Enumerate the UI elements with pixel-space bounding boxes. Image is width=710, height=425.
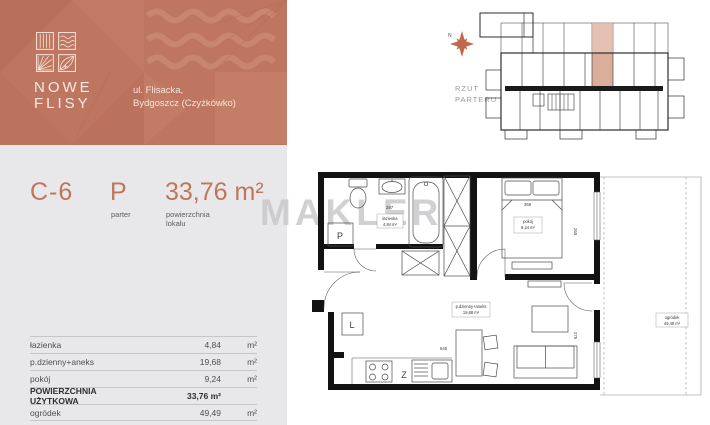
bathroom-area-label: 4,84 m² [383, 222, 398, 227]
kitchen: Z [352, 358, 452, 384]
brand-name-line1: NOWE [34, 80, 93, 96]
row-label: pokój [30, 374, 161, 384]
bathtub-icon [409, 177, 443, 247]
dim-bathroom: 297 [386, 205, 394, 210]
dining-table-icon [456, 330, 498, 377]
bathroom-door [354, 249, 376, 271]
table-row-bedroom: pokój 9,24 m² [30, 370, 257, 387]
floor-plan: ogródek 49,49 m² [287, 150, 710, 425]
sink-marker: Z [401, 370, 407, 380]
row-value: 49,49 [161, 408, 221, 418]
toilet-icon [349, 179, 367, 208]
living-room: p.dzienny+aneks 19,68 m² L Z [342, 302, 578, 384]
table-row-garden: ogródek 49,49 m² [30, 404, 257, 421]
bed-bench [512, 262, 552, 269]
site-plan: N RZUT PARTERU [430, 0, 710, 148]
bedroom-area-label: 9,24 m² [521, 225, 536, 230]
row-unit: m² [221, 357, 257, 367]
row-unit: m² [221, 340, 257, 350]
unit-area-value: 33,76 m² [165, 178, 264, 207]
listing-card: NOWE FLISY ul. Flisacka, Bydgoszcz (Czyż… [0, 0, 710, 425]
areas-table: łazienka 4,84 m² p.dzienny+aneks 19,68 m… [30, 336, 257, 421]
row-unit: m² [221, 408, 257, 418]
total-label: POWIERZCHNIA UŻYTKOWA [30, 386, 126, 406]
row-label: ogródek [30, 408, 161, 418]
brand-header: NOWE FLISY ul. Flisacka, Bydgoszcz (Czyż… [0, 0, 287, 145]
floor-caption: parter [111, 210, 131, 219]
left-panel: NOWE FLISY ul. Flisacka, Bydgoszcz (Czyż… [0, 0, 287, 425]
living-area-label: 19,68 m² [463, 310, 480, 315]
table-row-living: p.dzienny+aneks 19,68 m² [30, 353, 257, 370]
compass-n-label: N [448, 33, 452, 39]
dim-right-top: 269 [573, 228, 578, 236]
washer-marker: P [337, 231, 343, 241]
row-label: p.dzienny+aneks [30, 357, 161, 367]
kitchen-sink-icon [412, 360, 452, 382]
window-right-bedroom [594, 192, 600, 240]
unit-area-caption: powierzchnia lokalu [166, 210, 210, 228]
sink-icon [379, 179, 405, 194]
bathroom-label: łazienka [382, 216, 398, 221]
table-row-bathroom: łazienka 4,84 m² [30, 336, 257, 353]
unit-code: C-6 [30, 178, 73, 207]
dresser [528, 281, 561, 287]
bathroom: 297 łazienka 4,84 m² [349, 177, 443, 247]
total-value: 33,76 m² [126, 391, 221, 401]
unit-area-caption-line2: lokalu [166, 219, 210, 228]
brand-address: ul. Flisacka, Bydgoszcz (Czyżkówko) [133, 84, 236, 110]
row-value: 9,24 [161, 374, 221, 384]
row-value: 19,68 [161, 357, 221, 367]
floor-code: P [110, 178, 127, 207]
living-label: p.dzienny+aneks [456, 304, 487, 309]
row-unit: m² [221, 374, 257, 384]
window-right-living [594, 342, 600, 378]
header-pattern [0, 0, 287, 145]
sofa-icon [514, 346, 577, 378]
unit-area-caption-line1: powierzchnia [166, 210, 210, 219]
table-row-total: POWIERZCHNIA UŻYTKOWA 33,76 m² [30, 387, 257, 404]
row-value: 4,84 [161, 340, 221, 350]
bedroom: 369 pokój 9,24 m² 269 [502, 178, 578, 287]
highlighted-unit-garden [592, 23, 613, 53]
dim-right-bottom: 275 [573, 332, 578, 340]
brand-address-line2: Bydgoszcz (Czyżkówko) [133, 97, 236, 110]
coffee-table-icon [532, 306, 568, 332]
dim-living: 645 [440, 346, 448, 351]
tall-wardrobe-icon [444, 176, 470, 276]
building-outline [480, 13, 684, 139]
garden-area-label: 49,49 m² [664, 321, 681, 326]
garden-label: ogródek [665, 315, 681, 320]
garden-area: ogródek 49,49 m² [600, 177, 701, 395]
row-label: łazienka [30, 340, 161, 350]
entrance-door [324, 272, 360, 308]
dim-bedroom: 369 [524, 202, 532, 207]
brand-logo-icon [36, 32, 76, 72]
site-plan-caption-line2: PARTERU [455, 95, 497, 104]
brand-address-line1: ul. Flisacka, [133, 84, 236, 97]
wardrobe-icon [402, 251, 439, 275]
brand-name: NOWE FLISY [34, 80, 93, 112]
highlighted-unit [592, 53, 613, 87]
bedroom-door [477, 249, 505, 277]
site-plan-caption-line1: RZUT [455, 84, 479, 93]
bedroom-label: pokój [523, 219, 533, 224]
fridge-marker: L [349, 320, 354, 330]
north-star-icon: N [448, 31, 474, 57]
stove-icon [366, 361, 392, 382]
brand-name-line2: FLISY [34, 96, 93, 112]
